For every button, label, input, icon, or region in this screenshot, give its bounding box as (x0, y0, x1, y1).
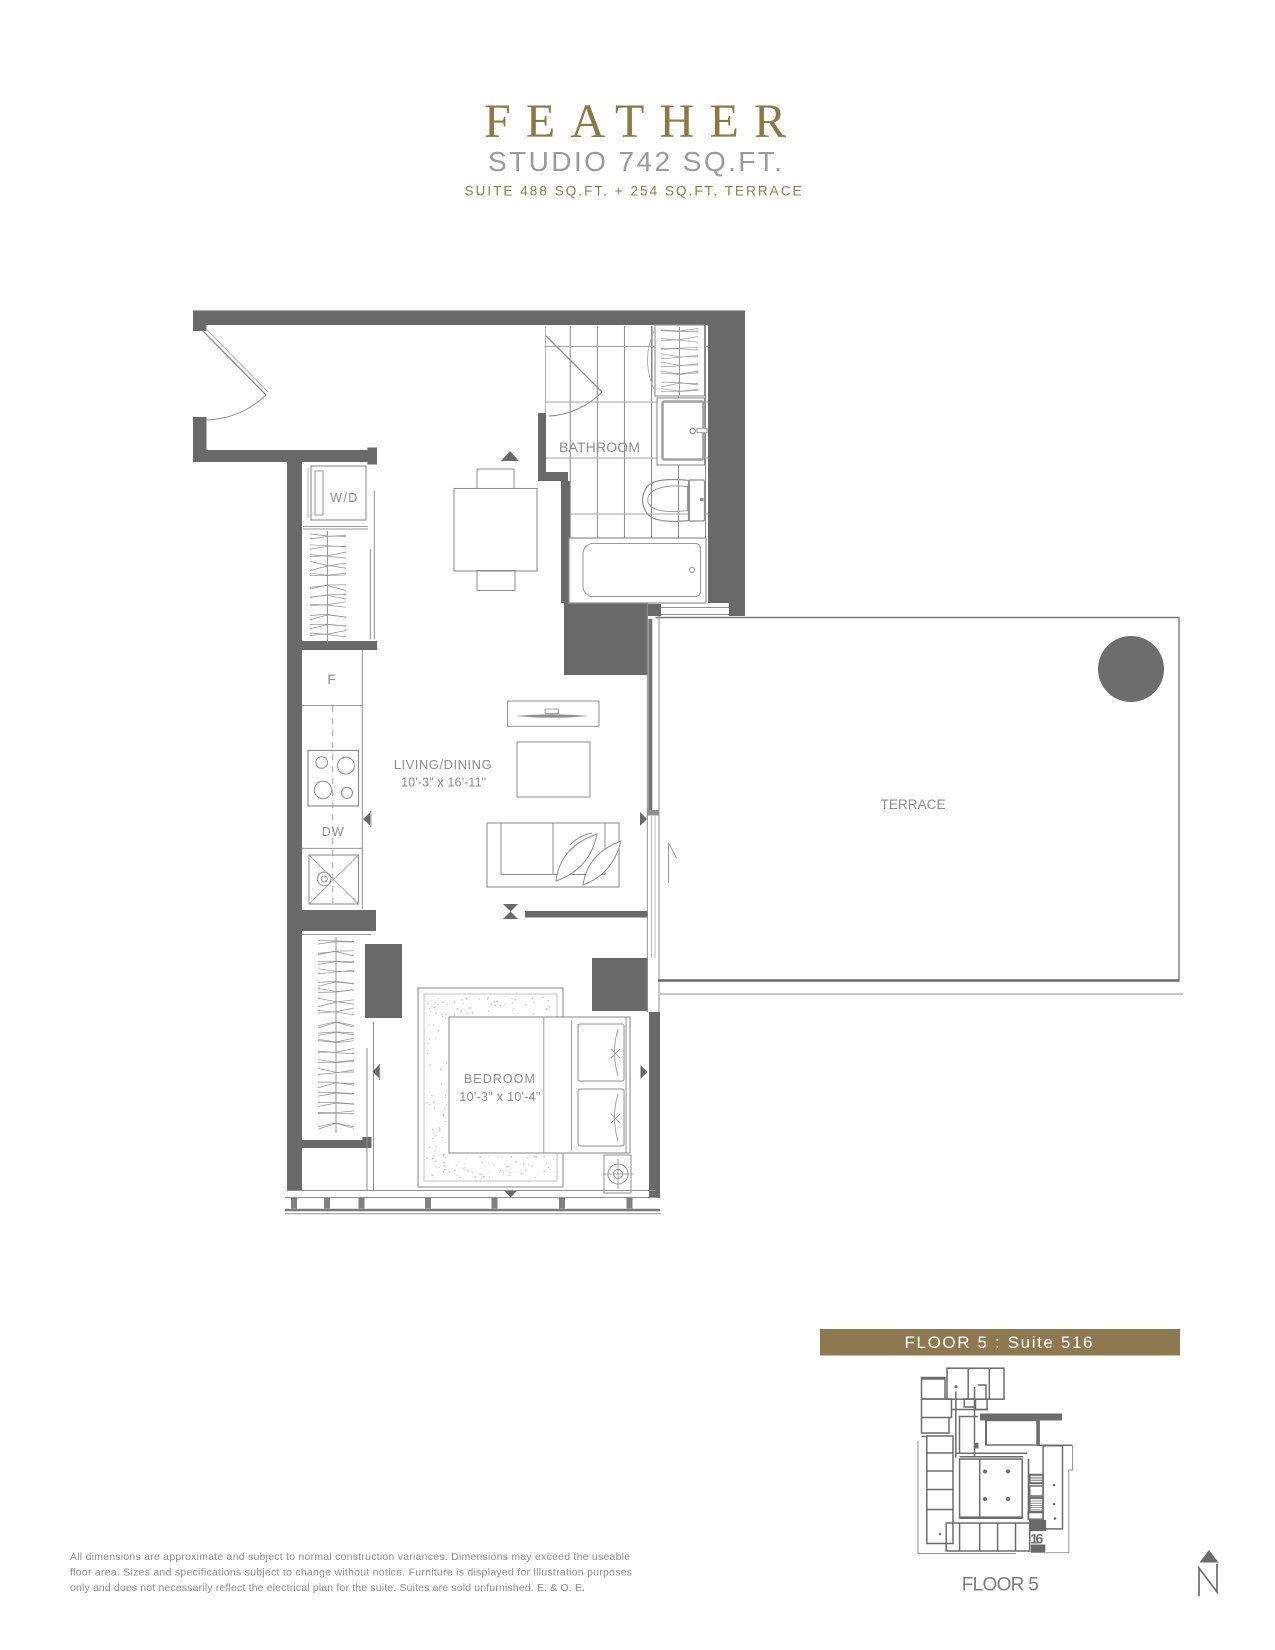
svg-text:10'-3" x 16'-11": 10'-3" x 16'-11" (401, 776, 486, 790)
svg-text:BATHROOM: BATHROOM (559, 439, 640, 455)
svg-text:LIVING/DINING: LIVING/DINING (394, 757, 492, 772)
svg-text:SUITE 488 SQ.FT. + 254 SQ.FT.: SUITE 488 SQ.FT. + 254 SQ.FT. TERRACE (465, 184, 802, 199)
svg-text:10'-3" x 10'-4": 10'-3" x 10'-4" (459, 1090, 540, 1104)
svg-text:STUDIO 742 SQ.FT.: STUDIO 742 SQ.FT. (488, 146, 782, 177)
svg-text:F: F (327, 671, 336, 687)
svg-text:DW: DW (322, 825, 344, 839)
svg-text:W/D: W/D (330, 491, 357, 505)
svg-text:BEDROOM: BEDROOM (464, 1072, 535, 1086)
svg-text:16: 16 (1030, 1531, 1043, 1547)
svg-text:TERRACE: TERRACE (881, 797, 946, 812)
svg-text:All dimensions are approximate: All dimensions are approximate and subje… (70, 1552, 630, 1563)
svg-text:only and does not necessarily: only and does not necessarily reflect th… (70, 1583, 585, 1594)
svg-text:FLOOR 5 : Suite 516: FLOOR 5 : Suite 516 (905, 1333, 1093, 1352)
svg-text:FLOOR 5: FLOOR 5 (962, 1575, 1039, 1596)
svg-text:floor area. Sizes and specific: floor area. Sizes and specifications sub… (70, 1568, 632, 1579)
svg-text:FEATHER: FEATHER (484, 95, 786, 148)
